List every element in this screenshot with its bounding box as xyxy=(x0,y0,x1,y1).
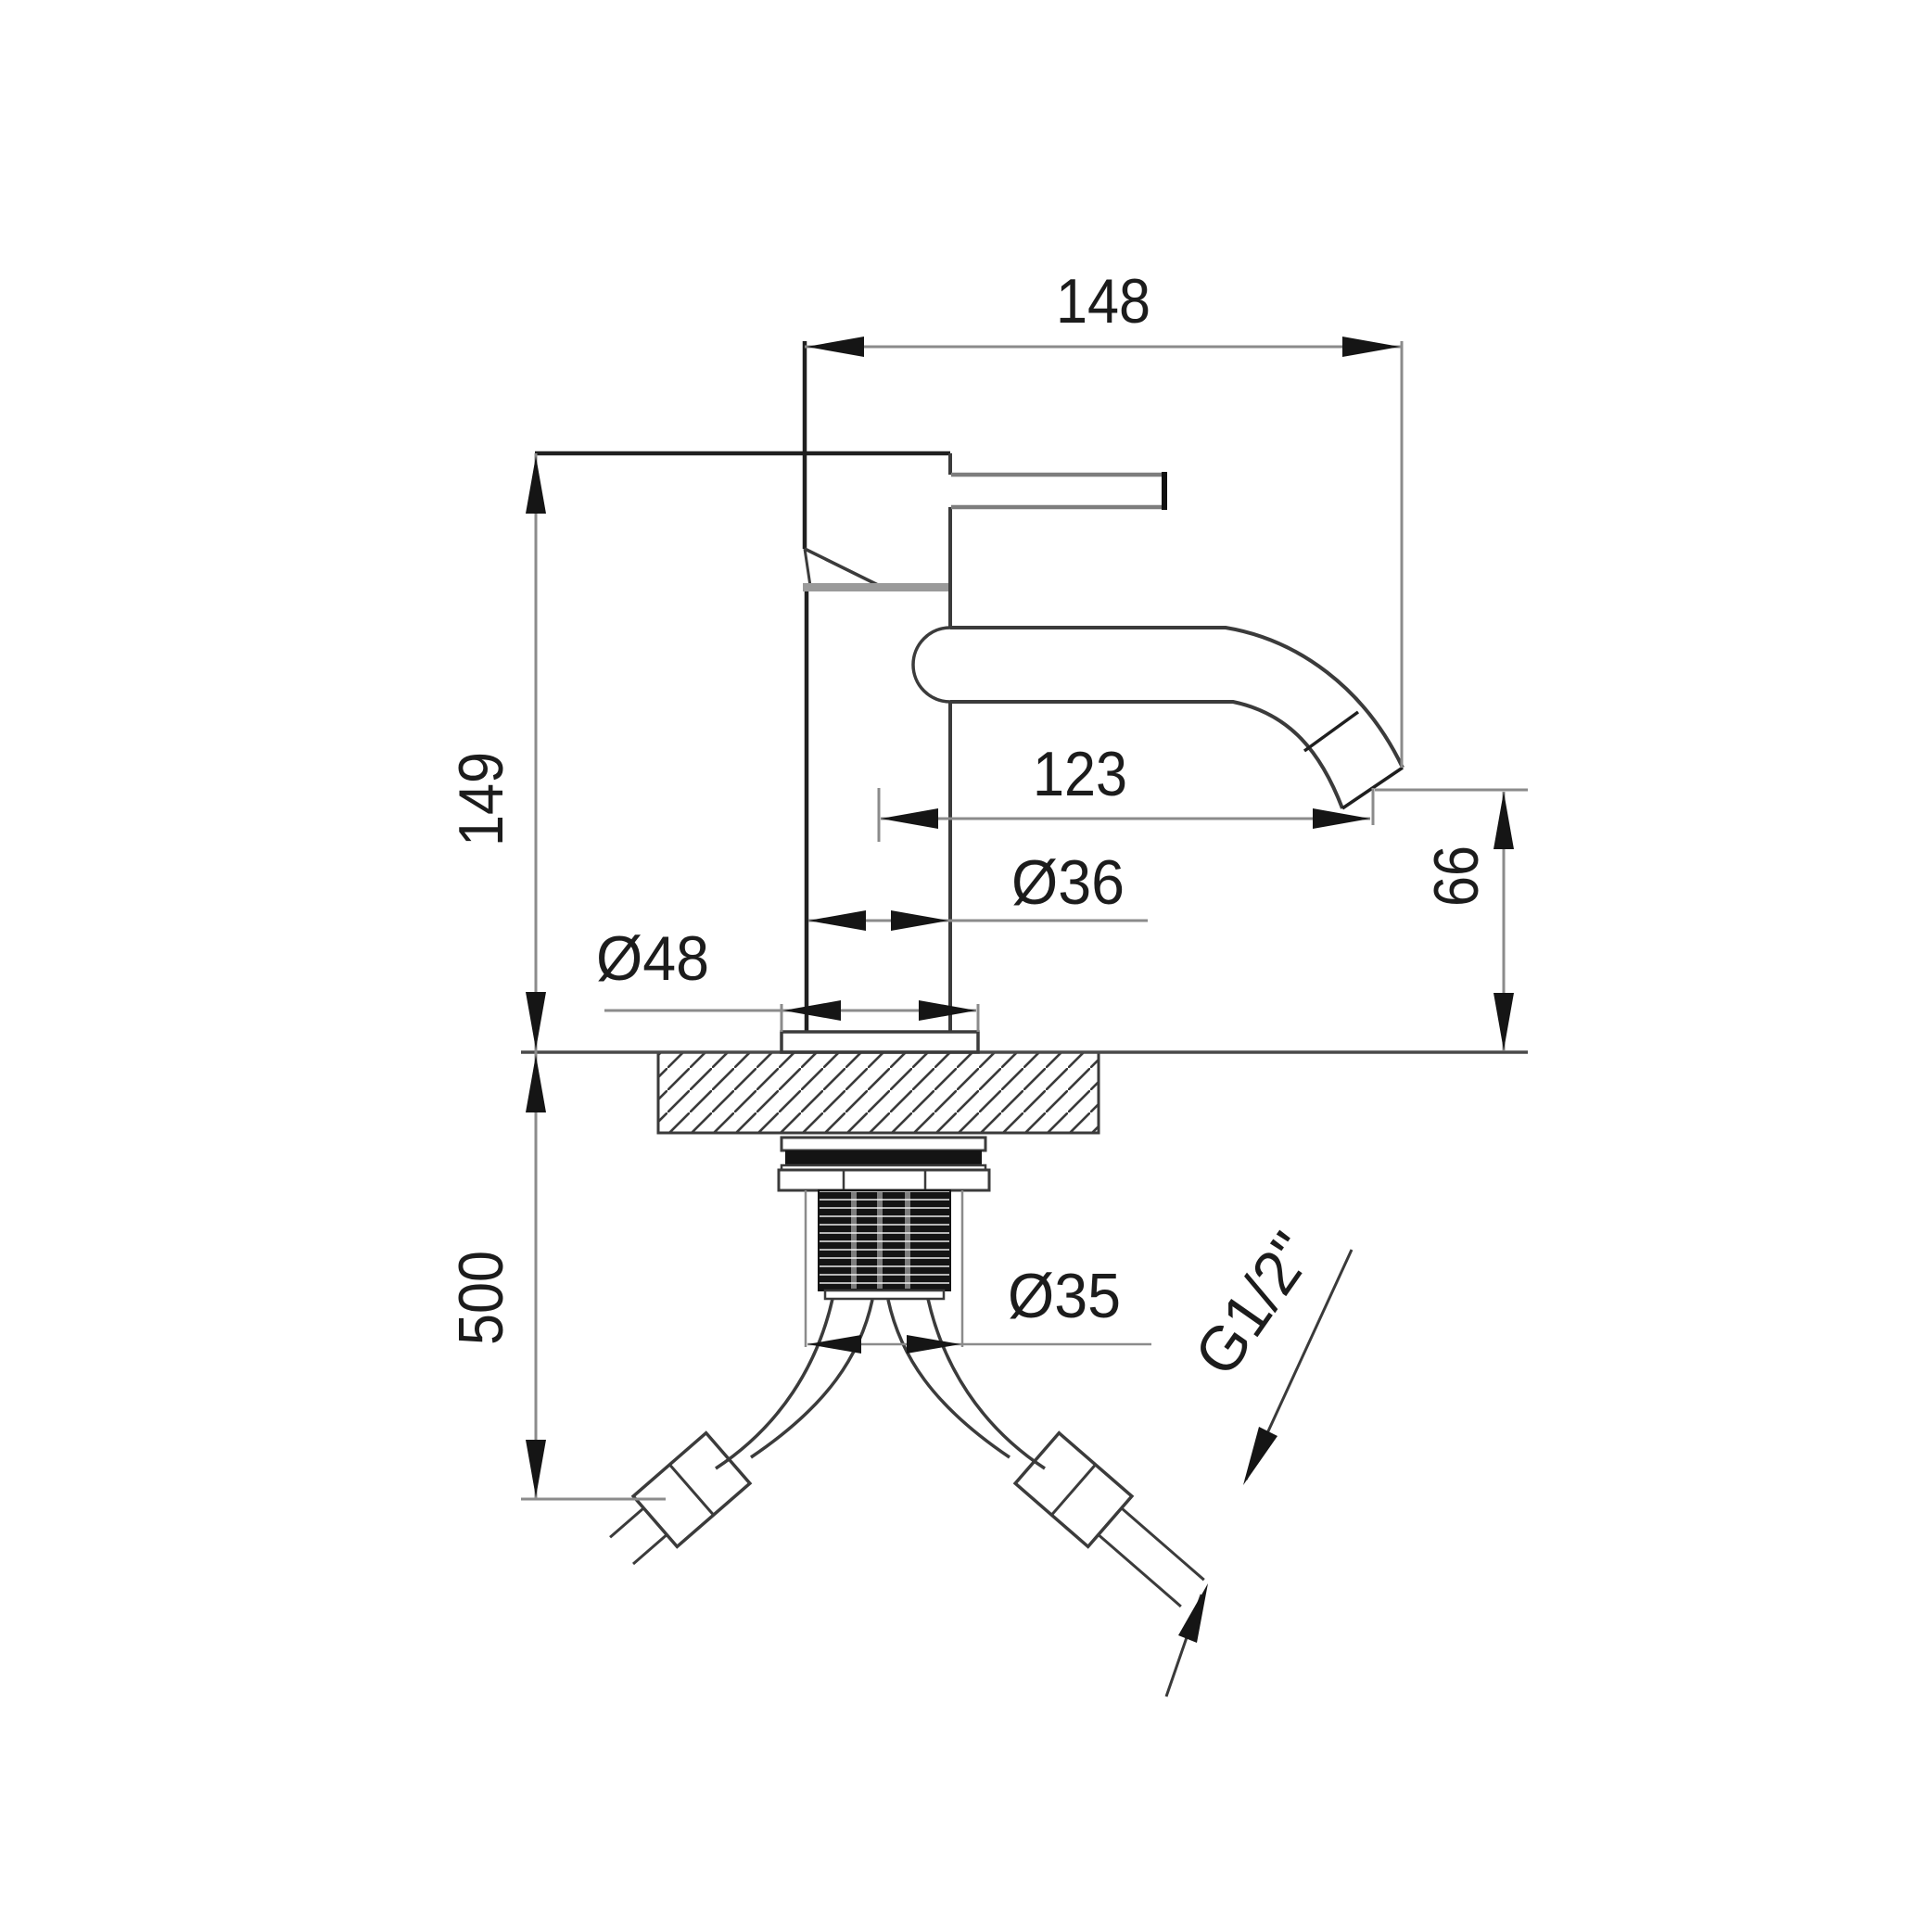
dim-overall-width: 148 xyxy=(805,266,1402,768)
countertop-section xyxy=(521,1052,1528,1133)
left-hose-fitting xyxy=(600,1433,750,1576)
cap-notch-jog xyxy=(805,549,810,586)
mounting-hardware xyxy=(779,1138,989,1299)
dim-label-d36: Ø36 xyxy=(1011,847,1125,918)
flange-outline xyxy=(782,1032,978,1052)
aerator-groove xyxy=(1304,712,1358,751)
dim-hose-length: 500 xyxy=(446,1052,666,1499)
faucet-dimension-drawing: 148 149 500 123 xyxy=(0,0,1932,1932)
dim-body-height: 149 xyxy=(446,453,546,1052)
left-hose-inner xyxy=(751,1300,872,1457)
dim-label-148: 148 xyxy=(1056,266,1150,337)
shank-highlight-2 xyxy=(877,1192,883,1289)
dim-spout-reach: 123 xyxy=(879,739,1373,842)
dim-label-d48: Ø48 xyxy=(596,923,709,994)
spout-root-arc xyxy=(913,628,950,702)
cap-notch-diagonal xyxy=(805,549,878,585)
spout-top-profile xyxy=(950,628,1403,768)
callout-thread: G1/2" xyxy=(1181,1220,1352,1485)
dim-base-diameter: Ø48 xyxy=(596,923,978,1032)
top-washer xyxy=(782,1138,985,1150)
base-flange xyxy=(782,1032,978,1052)
dim-outlet-height: 66 xyxy=(1375,790,1528,1050)
right-hose-fitting xyxy=(1015,1433,1214,1619)
rubber-seal xyxy=(785,1150,982,1165)
dim-label-66: 66 xyxy=(1421,845,1492,907)
countertop-hatch xyxy=(658,1052,1099,1133)
cartridge-collar xyxy=(803,583,952,591)
faucet-handle xyxy=(951,472,1164,510)
shank-highlight-1 xyxy=(851,1192,857,1289)
spout-bottom-profile xyxy=(950,702,1342,808)
technical-drawing-page: 148 149 500 123 xyxy=(0,0,1932,1932)
mounting-nut xyxy=(779,1170,989,1190)
dim-label-149: 149 xyxy=(446,752,516,846)
left-hose-outer xyxy=(716,1299,833,1468)
threaded-shank xyxy=(819,1190,950,1290)
dim-label-d35: Ø35 xyxy=(1008,1261,1121,1331)
shank-highlight-3 xyxy=(905,1192,910,1289)
dim-label-g12: G1/2" xyxy=(1181,1220,1328,1388)
shank-end-cap xyxy=(825,1290,944,1299)
dim-label-123: 123 xyxy=(1033,739,1127,809)
dim-label-500: 500 xyxy=(446,1251,516,1345)
dim-body-diameter: Ø36 xyxy=(808,847,1148,931)
dimensions: 148 149 500 123 xyxy=(446,266,1528,1697)
right-hose-inner xyxy=(888,1300,1010,1457)
faucet-spout xyxy=(913,628,1403,808)
